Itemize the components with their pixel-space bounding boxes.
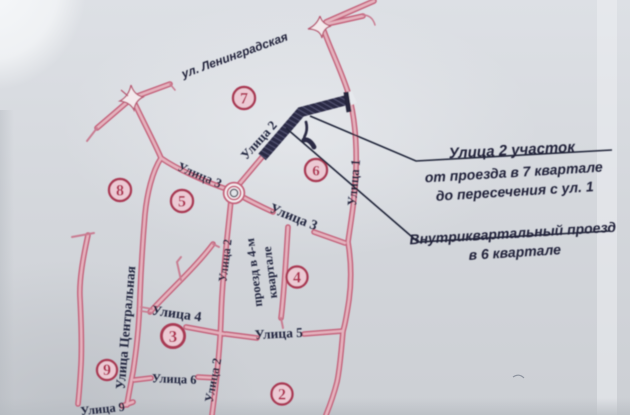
svg-text:4: 4 bbox=[293, 270, 301, 287]
svg-text:Улица 6: Улица 6 bbox=[152, 371, 197, 387]
svg-text:5: 5 bbox=[178, 194, 186, 211]
svg-text:8: 8 bbox=[116, 183, 124, 200]
svg-text:2: 2 bbox=[278, 387, 286, 404]
svg-text:6: 6 bbox=[312, 164, 320, 180]
svg-text:9: 9 bbox=[103, 362, 111, 379]
svg-text:7: 7 bbox=[240, 91, 248, 108]
svg-text:Улица 5: Улица 5 bbox=[254, 325, 303, 343]
svg-text:3: 3 bbox=[169, 327, 178, 346]
